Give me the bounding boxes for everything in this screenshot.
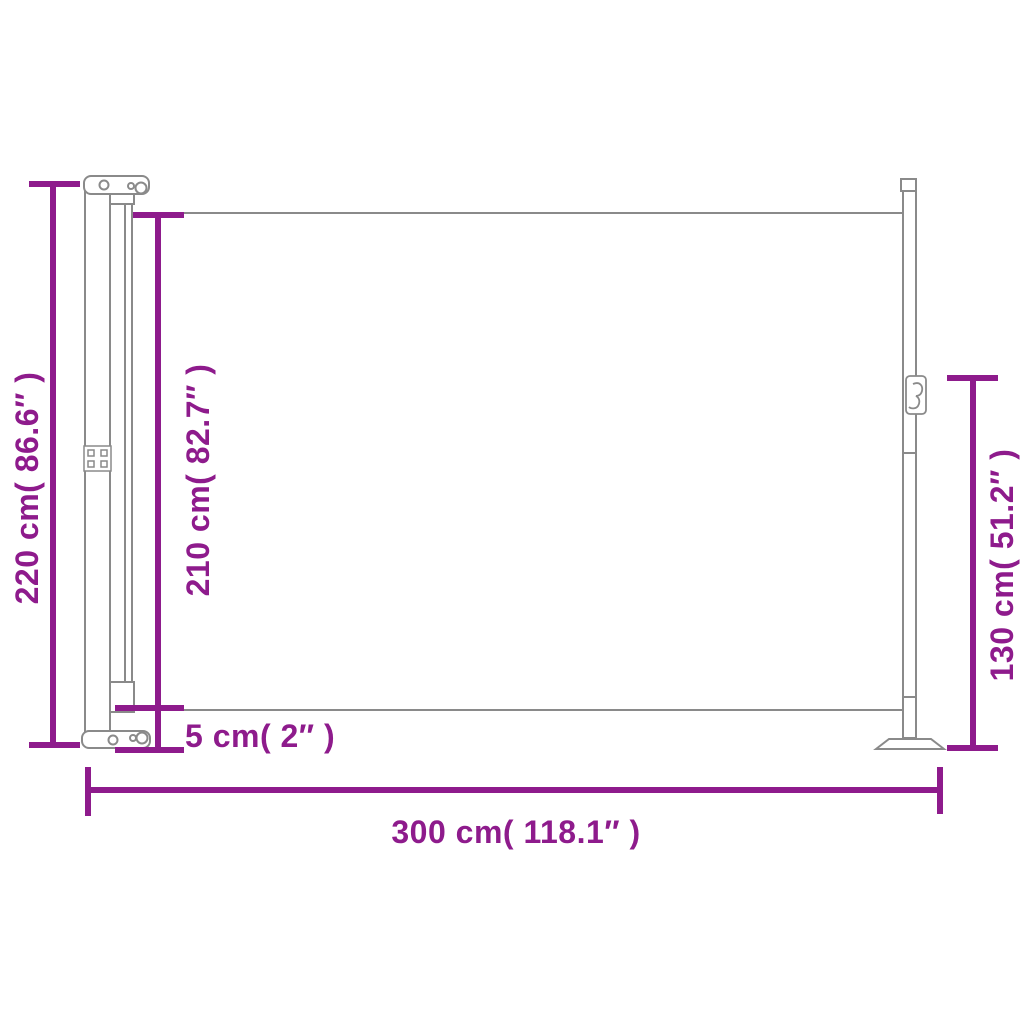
dimension-annotations: 220 cm( 86.6″ ) 210 cm( 82.7″ ) 5 cm( 2″…: [9, 181, 1020, 850]
dim-tick-bottom: [947, 745, 998, 751]
diagram-canvas: 220 cm( 86.6″ ) 210 cm( 82.7″ ) 5 cm( 2″…: [0, 0, 1024, 1024]
dimension-total-height: 220 cm( 86.6″ ): [9, 181, 80, 748]
post-foot-plate: [876, 739, 944, 749]
dimension-post-height: 130 cm( 51.2″ ): [947, 375, 1020, 751]
awning-dimension-diagram: 220 cm( 86.6″ ) 210 cm( 82.7″ ) 5 cm( 2″…: [0, 0, 1024, 1024]
bracket-screw: [101, 461, 107, 467]
dim-tick-bottom: [115, 747, 184, 753]
pull-handle: [906, 376, 926, 414]
top-cap-hook-eye: [136, 183, 147, 194]
foot-small-screw: [130, 735, 136, 741]
dim-tick-right: [937, 767, 943, 814]
foot-hook-eye: [137, 733, 148, 744]
label-post-height: 130 cm( 51.2″ ): [984, 449, 1020, 682]
foot-screw: [109, 736, 118, 745]
bracket-screw: [101, 450, 107, 456]
dimension-fabric-height: 210 cm( 82.7″ ): [115, 212, 216, 753]
cassette-post: [82, 176, 150, 748]
fabric-panel: [134, 213, 904, 710]
top-cap-screw: [100, 181, 109, 190]
pull-out-post: [876, 179, 944, 749]
wall-bracket: [84, 446, 111, 471]
dim-tick-middle: [115, 705, 184, 711]
dim-line-vertical: [970, 375, 976, 751]
dim-tick-left: [85, 767, 91, 816]
dimension-total-width: 300 cm( 118.1″ ): [85, 767, 943, 850]
dim-tick-top: [947, 375, 998, 381]
post-body: [903, 191, 916, 738]
dim-tick-top: [133, 212, 184, 218]
post-top-cap: [901, 179, 916, 191]
label-total-width: 300 cm( 118.1″ ): [391, 814, 640, 850]
top-cap-small-screw: [128, 183, 134, 189]
cassette-top-cap: [84, 176, 149, 194]
label-bottom-clearance: 5 cm( 2″ ): [185, 718, 335, 754]
dimension-bottom-clearance: 5 cm( 2″ ): [185, 718, 335, 754]
label-fabric-height: 210 cm( 82.7″ ): [180, 364, 216, 597]
dim-line-horizontal: [88, 787, 940, 793]
dim-tick-bottom: [29, 742, 80, 748]
dim-line-vertical: [155, 212, 161, 753]
dim-tick-top: [29, 181, 80, 187]
bracket-screw: [88, 461, 94, 467]
bracket-screw: [88, 450, 94, 456]
cassette-foot: [82, 731, 150, 748]
label-total-height: 220 cm( 86.6″ ): [9, 372, 45, 605]
dim-line-vertical: [50, 181, 56, 748]
